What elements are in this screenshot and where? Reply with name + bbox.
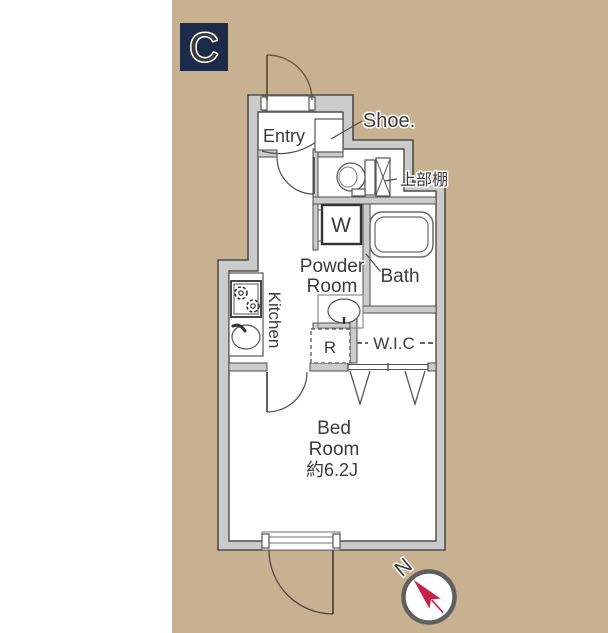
stove-icon xyxy=(231,281,261,317)
shoe-cabinet xyxy=(315,119,343,152)
floorplan-page: C xyxy=(0,0,608,633)
wic-label: W.I.C xyxy=(373,334,415,353)
unit-label-box: C xyxy=(180,23,228,71)
bedroom-label-line2: Room xyxy=(309,439,360,460)
fridge-label: R xyxy=(324,338,336,357)
bathtub-icon xyxy=(370,212,433,257)
powder-room-label-line1: Powder xyxy=(300,256,365,277)
unit-label: C xyxy=(190,26,219,70)
bath-label: Bath xyxy=(380,266,419,287)
upper-shelf xyxy=(376,158,390,196)
powder-room-label-line2: Room xyxy=(307,276,358,297)
kitchen-label: Kitchen xyxy=(265,292,284,349)
washer-label: W xyxy=(331,214,351,237)
kitchen-counter xyxy=(229,273,263,356)
floorplan-canvas: C xyxy=(0,0,608,633)
entry-label: Entry xyxy=(263,126,305,146)
bedroom-size-label: 約6.2J xyxy=(306,460,358,480)
upper-shelf-label: 上部棚 xyxy=(400,171,448,189)
kitchen-sink-icon xyxy=(232,325,260,349)
bedroom-label-line1: Bed xyxy=(317,418,351,439)
shoe-label: Shoe. xyxy=(363,110,415,132)
